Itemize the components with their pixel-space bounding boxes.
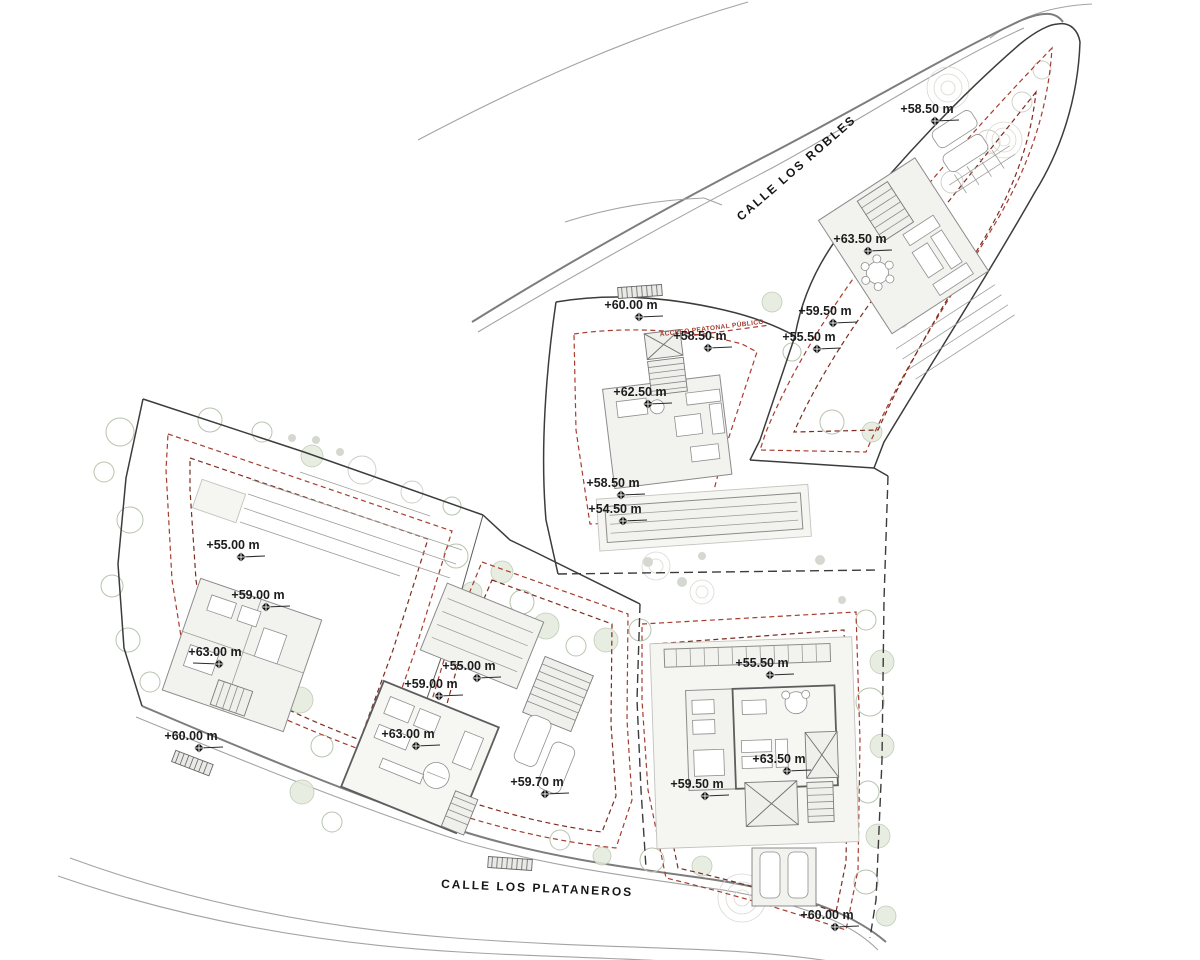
elevation-marker: +59.50 m [798,304,857,328]
road-calle-los-robles [418,2,1092,332]
crossing-hatch-south [488,856,533,870]
site-plan-canvas: CALLE LOS ROBLES CALLE LOS PLATANEROS AC… [0,0,1200,960]
crossing-hatch-west [172,750,214,776]
pool-center [420,583,543,689]
benchmark-icon [434,691,444,701]
elevation-label: +59.70 m [510,775,563,789]
villa-middle [596,325,731,488]
benchmark-icon [194,743,204,753]
elevation-label: +60.00 m [164,729,217,743]
elevation-label: +54.50 m [588,502,641,516]
elevation-label: +63.50 m [833,232,886,246]
garden-terraces-west [192,472,462,578]
elevation-label: +63.00 m [381,727,434,741]
benchmark-icon [930,116,940,126]
elevation-label: +55.00 m [442,659,495,673]
benchmark-icon [236,552,246,562]
elevation-label: +59.50 m [670,777,723,791]
elevation-label: +63.00 m [188,645,241,659]
street-label-plataneros: CALLE LOS PLATANEROS [441,877,634,899]
elevation-label: +55.50 m [735,656,788,670]
villa-northeast [814,158,1016,379]
benchmark-icon [828,318,838,328]
elevation-marker: +60.00 m [604,298,663,322]
benchmark-icon [830,922,840,932]
elevation-marker: +59.70 m [510,775,569,799]
site-plan-drawing: CALLE LOS ROBLES CALLE LOS PLATANEROS AC… [0,0,1200,960]
elevation-label: +59.00 m [231,588,284,602]
benchmark-icon [634,312,644,322]
elevation-label: +58.50 m [586,476,639,490]
elevation-label: +63.50 m [752,752,805,766]
elevation-label: +59.00 m [404,677,457,691]
garage-southeast [752,848,816,906]
elevation-label: +62.50 m [613,385,666,399]
elevation-label: +55.00 m [206,538,259,552]
elevation-marker: +55.00 m [206,538,265,562]
elevation-label: +55.50 m [782,330,835,344]
elevation-marker: +55.50 m [782,330,841,354]
benchmark-icon [703,343,713,353]
crossing-hatch-north [618,284,663,298]
villa-center [341,681,499,833]
elevation-label: +60.00 m [800,908,853,922]
elevation-label: +58.50 m [900,102,953,116]
elevation-label: +59.50 m [798,304,851,318]
elevation-label: +58.50 m [673,329,726,343]
elevation-label: +60.00 m [604,298,657,312]
benchmark-icon [812,344,822,354]
